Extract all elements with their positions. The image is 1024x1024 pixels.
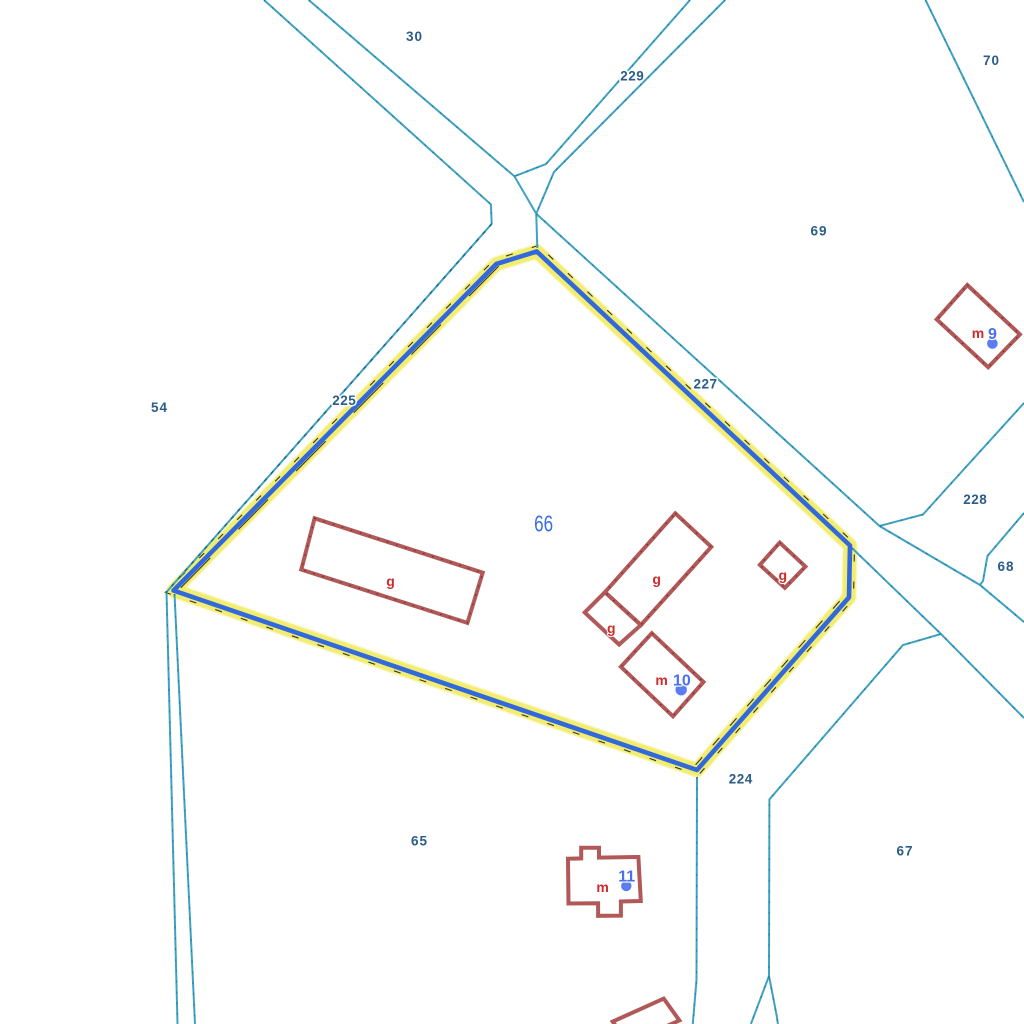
svg-text:30: 30	[406, 29, 422, 44]
svg-text:10: 10	[673, 673, 691, 690]
svg-text:m: m	[655, 672, 667, 688]
svg-text:65: 65	[411, 834, 427, 849]
svg-text:224: 224	[729, 772, 753, 787]
svg-text:g: g	[386, 573, 395, 589]
svg-text:g: g	[779, 567, 788, 583]
svg-text:66: 66	[534, 511, 553, 537]
svg-text:69: 69	[811, 224, 827, 239]
svg-text:229: 229	[620, 69, 644, 84]
svg-text:68: 68	[998, 559, 1014, 574]
svg-text:m: m	[596, 879, 608, 895]
svg-text:9: 9	[988, 326, 997, 343]
svg-text:70: 70	[983, 53, 999, 68]
svg-text:g: g	[607, 620, 616, 636]
svg-text:11: 11	[618, 869, 635, 886]
svg-text:54: 54	[151, 400, 167, 415]
svg-text:67: 67	[897, 844, 913, 859]
svg-text:228: 228	[963, 492, 987, 507]
svg-text:225: 225	[332, 393, 356, 408]
svg-text:m: m	[972, 325, 984, 341]
svg-text:g: g	[652, 571, 661, 587]
svg-text:227: 227	[694, 377, 718, 392]
